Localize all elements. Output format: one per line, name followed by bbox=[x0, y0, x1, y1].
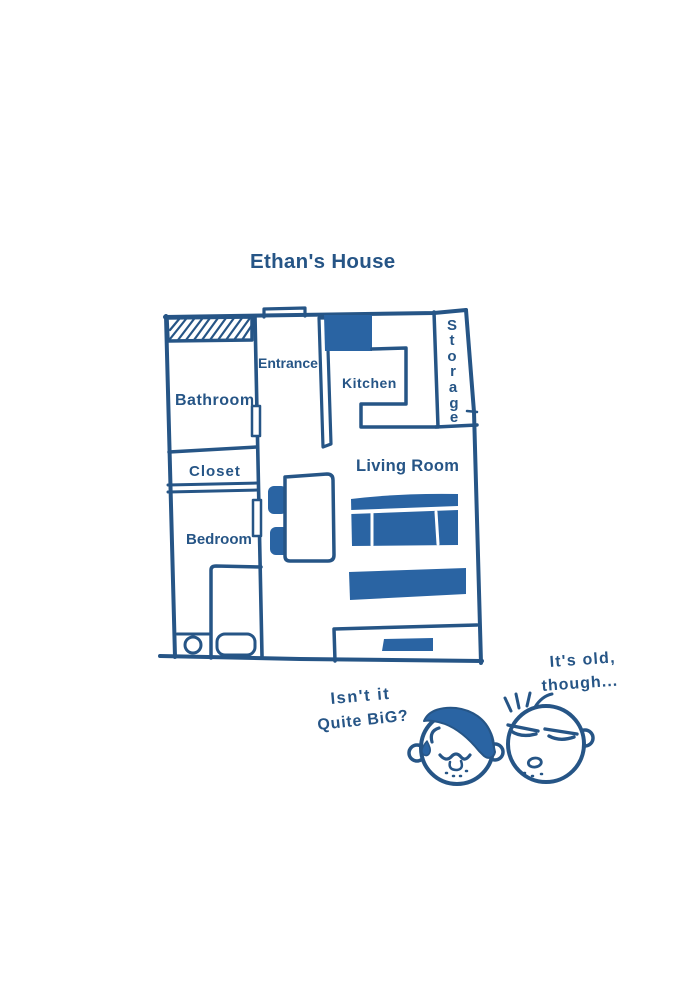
svg-text:a: a bbox=[449, 379, 458, 396]
svg-text:Bedroom: Bedroom bbox=[186, 531, 252, 548]
svg-text:Ethan's House: Ethan's House bbox=[250, 250, 395, 273]
svg-text:e: e bbox=[450, 409, 458, 426]
svg-text:t: t bbox=[450, 332, 455, 349]
svg-text:Quite BiG?: Quite BiG? bbox=[317, 708, 410, 734]
svg-text:Isn't it: Isn't it bbox=[330, 685, 391, 708]
svg-text:Kitchen: Kitchen bbox=[342, 375, 397, 391]
svg-text:Entrance: Entrance bbox=[258, 355, 318, 371]
svg-text:though...: though... bbox=[541, 673, 619, 695]
svg-text:Closet: Closet bbox=[189, 463, 241, 480]
svg-text:Living Room: Living Room bbox=[356, 457, 459, 475]
svg-text:r: r bbox=[450, 363, 456, 380]
svg-text:It's old,: It's old, bbox=[549, 649, 616, 671]
svg-text:Bathroom: Bathroom bbox=[175, 392, 255, 409]
